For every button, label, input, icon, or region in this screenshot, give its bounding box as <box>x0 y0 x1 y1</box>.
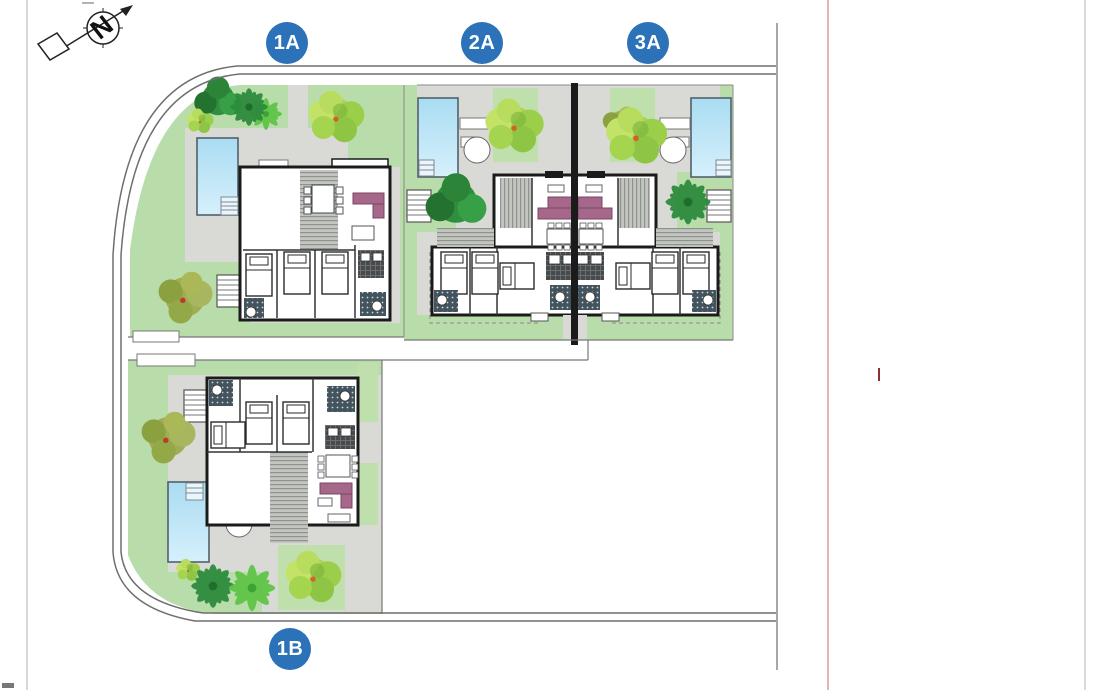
site-plan-svg: N <box>0 0 1102 690</box>
bed <box>441 252 467 294</box>
entry-path-1a <box>288 85 308 130</box>
party-wall <box>571 83 578 345</box>
bed <box>284 252 310 294</box>
breakfast-table <box>352 226 374 240</box>
bed <box>246 402 272 444</box>
bed <box>500 263 534 289</box>
dining-table <box>579 229 603 244</box>
dining-table <box>326 455 350 477</box>
pool-steps-1a <box>221 197 238 215</box>
plot-2a-3a <box>404 83 733 345</box>
north-arrow-icon: N <box>38 5 133 60</box>
unit-badge-1b: 1B <box>269 628 311 670</box>
unit-badge-1a: 1A <box>266 22 308 64</box>
bed <box>283 402 309 444</box>
bed <box>616 263 650 289</box>
gate <box>137 354 195 366</box>
bed <box>472 252 498 294</box>
bed <box>322 252 348 294</box>
sun-lounger <box>460 118 490 129</box>
dining-table <box>312 185 334 213</box>
interior-deck <box>270 452 308 526</box>
stairs-3a <box>707 190 731 222</box>
site-plan: N 1A 2A 3A 1B <box>0 0 1102 690</box>
unit-badge-2a: 2A <box>461 22 503 64</box>
bed <box>246 254 272 296</box>
dining-table <box>547 229 571 244</box>
bed <box>211 422 245 448</box>
bed <box>652 252 678 294</box>
gate <box>133 331 179 342</box>
unit-badge-3a: 3A <box>627 22 669 64</box>
plot-1b <box>128 360 382 614</box>
stairs-1a <box>217 275 241 307</box>
bed <box>683 252 709 294</box>
house-1b <box>207 378 358 543</box>
plot-1a <box>130 77 404 338</box>
round-table <box>464 137 490 163</box>
stairs-1b <box>184 390 208 422</box>
house-1a <box>240 159 390 320</box>
